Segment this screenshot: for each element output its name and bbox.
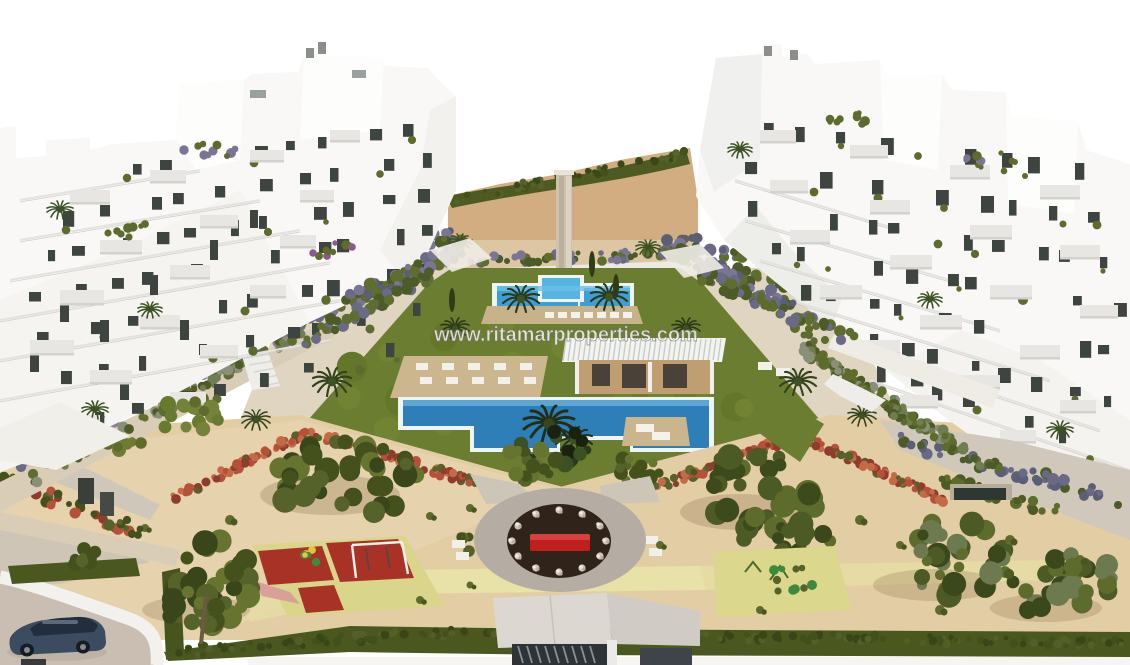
svg-text:www.ritamarproperties.com: www.ritamarproperties.com: [433, 324, 698, 346]
